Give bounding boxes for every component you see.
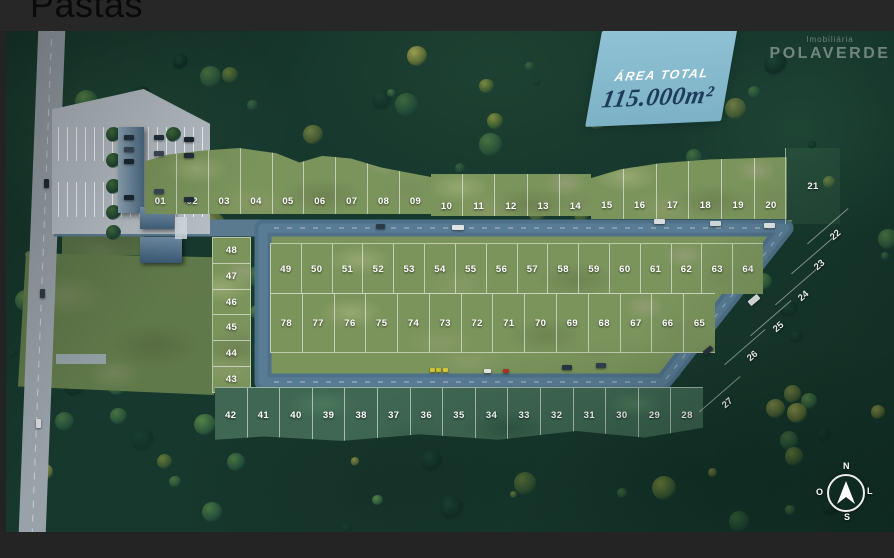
lot-44: 44 <box>213 341 250 367</box>
compass-ring <box>827 474 865 512</box>
parked-car <box>154 135 164 140</box>
lot-14: 14 <box>560 174 591 216</box>
watermark-subtitle: Imobiliária <box>764 35 894 44</box>
lot-56: 56 <box>487 244 518 294</box>
vehicle <box>503 369 509 373</box>
compass-needle-icon <box>829 476 863 510</box>
vehicle <box>430 368 435 372</box>
lot-57: 57 <box>518 244 549 294</box>
lot-03: 03 <box>209 148 241 214</box>
lot-77: 77 <box>303 294 335 352</box>
vehicle <box>764 223 775 228</box>
lot-74: 74 <box>398 294 430 352</box>
vehicle <box>452 225 464 230</box>
parked-car <box>154 151 164 156</box>
lot-34: 34 <box>476 388 509 442</box>
window-header: Pastas <box>0 0 894 31</box>
lot-78: 78 <box>271 294 303 352</box>
lot-68: 68 <box>589 294 621 352</box>
vehicle <box>40 289 45 298</box>
lot-48: 48 <box>213 238 250 264</box>
lot-35: 35 <box>443 388 476 442</box>
lot-12: 12 <box>495 174 527 216</box>
lot-30: 30 <box>606 388 639 442</box>
parked-car <box>124 147 134 152</box>
parked-car <box>124 159 134 164</box>
vehicle <box>443 368 448 372</box>
lot-46: 46 <box>213 290 250 316</box>
lot-38: 38 <box>345 388 378 442</box>
compass-south-label: S <box>844 512 850 522</box>
gate-canopy <box>175 217 187 239</box>
lot-45: 45 <box>213 315 250 341</box>
lot-41: 41 <box>248 388 281 442</box>
lot-40: 40 <box>280 388 313 442</box>
lot-row-middle-2: 7877767574737271706968676665 <box>270 293 715 353</box>
lot-66: 66 <box>652 294 684 352</box>
lot-67: 67 <box>621 294 653 352</box>
lot-04: 04 <box>241 148 273 214</box>
parked-car <box>184 153 194 158</box>
lot-51: 51 <box>333 244 364 294</box>
parked-car <box>184 197 194 202</box>
parked-car <box>184 137 194 142</box>
lot-42: 42 <box>215 388 248 442</box>
lot-11: 11 <box>463 174 495 216</box>
lot-row-bottom: 424140393837363534333231302928 <box>215 387 703 442</box>
lot-60: 60 <box>610 244 641 294</box>
tree-blob <box>106 225 121 240</box>
tree-blob <box>166 127 181 142</box>
lot-72: 72 <box>462 294 494 352</box>
lot-58: 58 <box>548 244 579 294</box>
vehicle <box>562 365 572 370</box>
gatehouse-building <box>140 237 182 263</box>
lot-17: 17 <box>657 157 690 219</box>
lot-69: 69 <box>557 294 589 352</box>
lot-70: 70 <box>525 294 557 352</box>
lot-10: 10 <box>431 174 463 216</box>
lot-54: 54 <box>425 244 456 294</box>
lot-73: 73 <box>430 294 462 352</box>
compass-rose: N S O L <box>819 463 871 523</box>
vehicle <box>484 369 491 373</box>
lot-47: 47 <box>213 264 250 290</box>
lot-column-left: 484746454443 <box>212 237 251 393</box>
masterplan-aerial-image: 010203040506070809 1011121314 1516171819… <box>6 31 894 532</box>
vehicle <box>710 221 721 226</box>
watermark-brand: POLAVERDE <box>764 45 894 63</box>
lot-61: 61 <box>641 244 672 294</box>
lot-37: 37 <box>378 388 411 442</box>
vehicle <box>654 219 665 224</box>
screenshot-stage: Pastas 010203040506070809 1011121314 151… <box>0 0 894 558</box>
parked-car <box>124 135 134 140</box>
compass-east-label: L <box>867 486 873 496</box>
lot-49: 49 <box>271 244 302 294</box>
lot-row-middle-1: 49505152535455565758596061626364 <box>270 243 763 294</box>
lot-column-right-diagonal: 222324252627 <box>696 209 871 424</box>
parked-car <box>124 195 134 200</box>
lot-55: 55 <box>456 244 487 294</box>
vehicle <box>44 179 49 188</box>
compass-west-label: O <box>816 487 823 497</box>
total-area-label: ÁREA TOTAL <box>614 66 710 84</box>
parked-car <box>154 189 164 194</box>
lot-52: 52 <box>363 244 394 294</box>
lot-27: 27 <box>699 376 755 429</box>
lot-59: 59 <box>579 244 610 294</box>
lot-33: 33 <box>508 388 541 442</box>
lot-13: 13 <box>528 174 560 216</box>
lot-36: 36 <box>411 388 444 442</box>
lot-76: 76 <box>335 294 367 352</box>
vehicle <box>436 368 441 372</box>
lot-39: 39 <box>313 388 346 442</box>
lot-53: 53 <box>394 244 425 294</box>
developer-watermark: Imobiliária POLAVERDE <box>764 35 894 63</box>
vehicle <box>596 363 606 368</box>
window-footer <box>0 532 894 558</box>
compass-north-label: N <box>843 461 850 471</box>
lot-71: 71 <box>493 294 525 352</box>
page-title: Pastas <box>30 0 143 26</box>
total-area-value: 115.000m² <box>600 82 716 115</box>
vehicle <box>376 224 385 229</box>
vehicle <box>36 419 41 428</box>
lot-50: 50 <box>302 244 333 294</box>
lot-75: 75 <box>366 294 398 352</box>
lot-row-top-b: 1011121314 <box>431 174 591 216</box>
total-area-badge: ÁREA TOTAL 115.000m² <box>585 31 738 127</box>
